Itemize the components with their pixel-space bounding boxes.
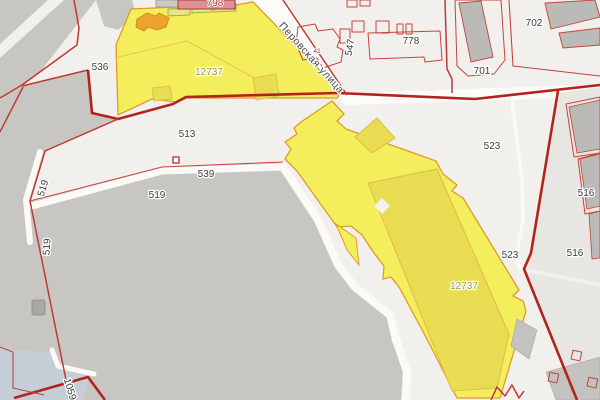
label-513: 513 xyxy=(179,129,196,140)
label-519-r2: 519 xyxy=(41,238,53,256)
building-small-west[interactable] xyxy=(32,300,45,315)
label-701: 701 xyxy=(474,66,491,77)
label-parcel-12737-north: 12737 xyxy=(195,67,223,78)
map-viewport[interactable]: 798 778 702 701 547 42 536 513 539 519 5… xyxy=(0,0,600,400)
building-gray-top[interactable] xyxy=(156,0,178,7)
label-702: 702 xyxy=(526,18,543,29)
marker-point-539 xyxy=(173,157,179,163)
label-519-h: 519 xyxy=(149,190,166,201)
label-parcel-12737-south: 12737 xyxy=(450,281,478,292)
label-523-b: 523 xyxy=(502,250,519,261)
label-539: 539 xyxy=(198,169,215,180)
label-798: 798 xyxy=(207,0,224,9)
label-536: 536 xyxy=(92,62,109,73)
building-olive-north-a[interactable] xyxy=(152,86,172,101)
label-516-b: 516 xyxy=(567,248,584,259)
map-canvas[interactable]: 798 778 702 701 547 42 536 513 539 519 5… xyxy=(0,0,600,400)
label-523-a: 523 xyxy=(484,141,501,152)
label-516-a: 516 xyxy=(578,188,595,199)
label-778: 778 xyxy=(403,36,420,47)
